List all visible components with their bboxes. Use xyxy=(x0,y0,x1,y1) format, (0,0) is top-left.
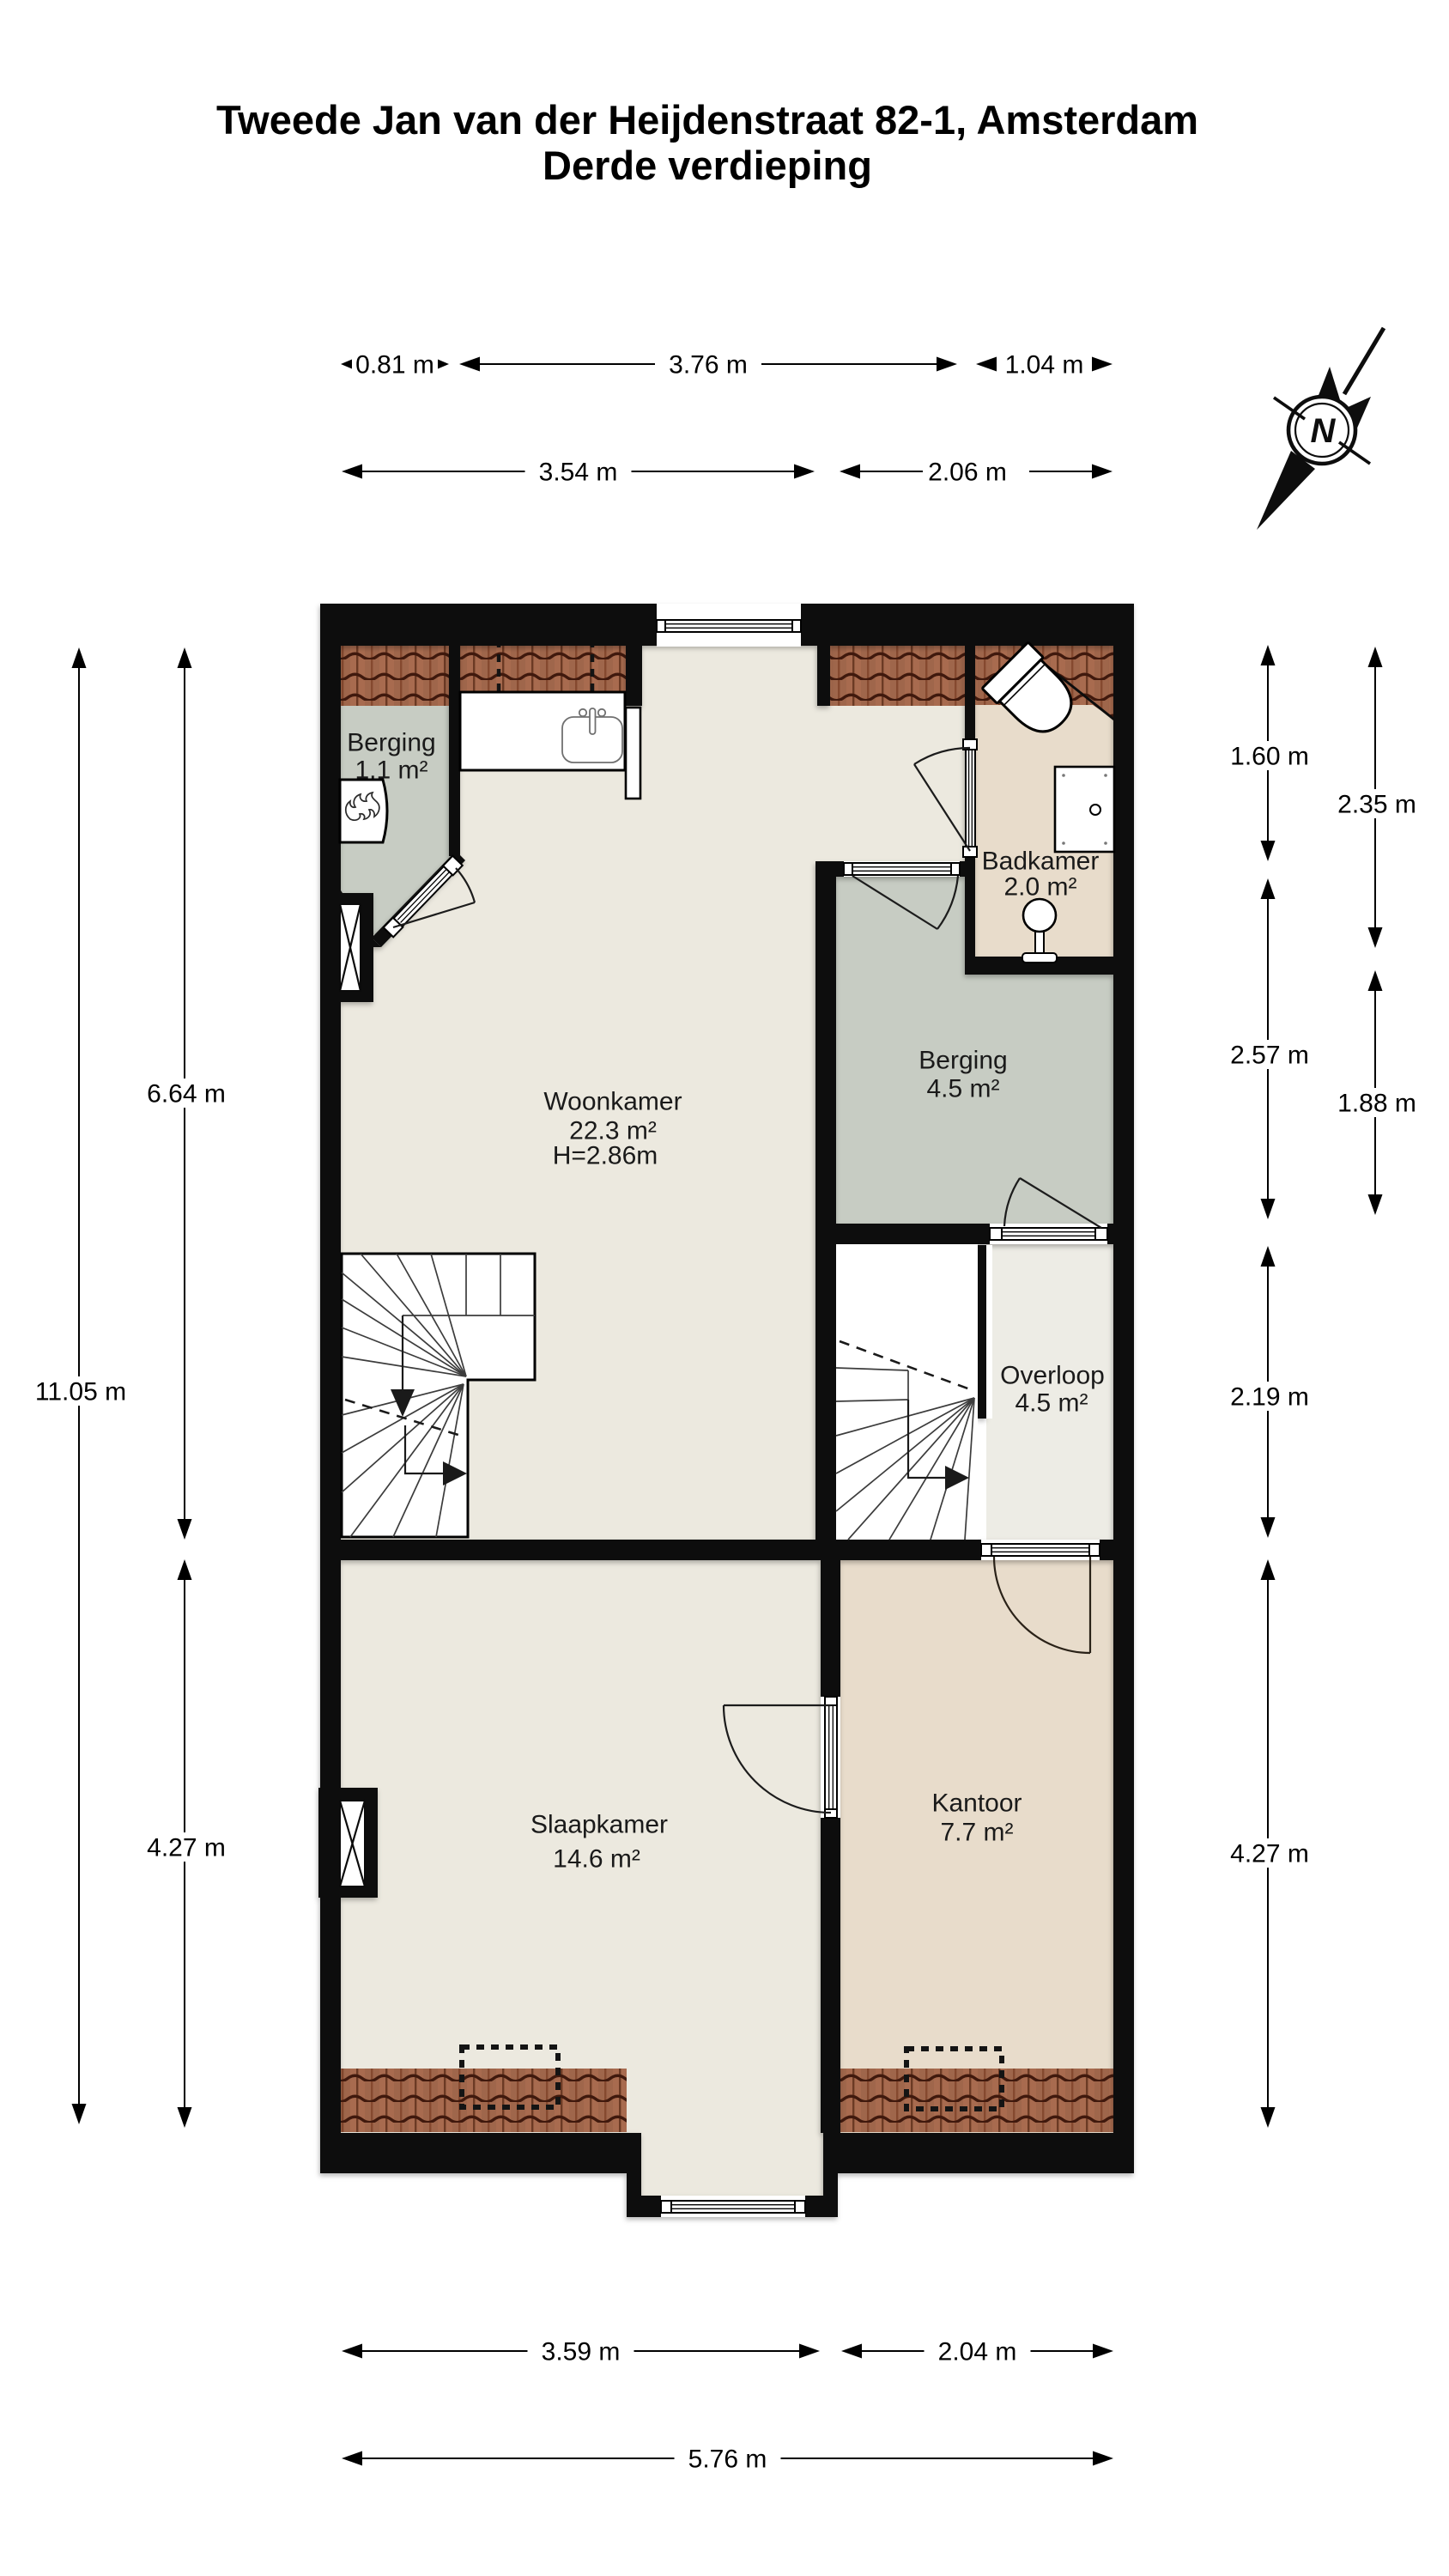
svg-text:1.88 m: 1.88 m xyxy=(1337,1090,1416,1118)
svg-text:0.81 m: 0.81 m xyxy=(355,351,434,380)
svg-text:2.19 m: 2.19 m xyxy=(1230,1383,1309,1412)
svg-text:Tweede Jan van der Heijdenstra: Tweede Jan van der Heijdenstraat 82-1, A… xyxy=(216,97,1198,143)
svg-text:2.06 m: 2.06 m xyxy=(928,459,1007,487)
svg-text:Berging: Berging xyxy=(919,1047,1007,1075)
svg-text:Overloop: Overloop xyxy=(1000,1362,1105,1390)
svg-text:4.27 m: 4.27 m xyxy=(147,1834,226,1862)
svg-text:11.05 m: 11.05 m xyxy=(35,1378,126,1406)
svg-text:Badkamer: Badkamer xyxy=(982,848,1100,876)
svg-text:N: N xyxy=(1311,412,1337,450)
svg-text:2.35 m: 2.35 m xyxy=(1337,791,1416,819)
svg-text:Kantoor: Kantoor xyxy=(931,1789,1022,1818)
svg-text:3.59 m: 3.59 m xyxy=(542,2338,621,2366)
svg-text:Slaapkamer: Slaapkamer xyxy=(530,1811,668,1839)
svg-text:Derde verdieping: Derde verdieping xyxy=(543,143,872,188)
svg-text:6.64 m: 6.64 m xyxy=(147,1080,226,1109)
svg-text:2.0 m²: 2.0 m² xyxy=(1003,873,1076,902)
svg-text:3.54 m: 3.54 m xyxy=(539,459,618,487)
svg-text:4.27 m: 4.27 m xyxy=(1230,1840,1309,1868)
svg-text:2.57 m: 2.57 m xyxy=(1230,1042,1309,1070)
svg-text:4.5 m²: 4.5 m² xyxy=(1015,1389,1088,1418)
svg-text:1.1 m²: 1.1 m² xyxy=(355,756,427,785)
svg-text:2.04 m: 2.04 m xyxy=(938,2338,1017,2366)
svg-text:Berging: Berging xyxy=(347,729,435,757)
svg-text:Woonkamer: Woonkamer xyxy=(543,1088,682,1116)
svg-text:14.6 m²: 14.6 m² xyxy=(553,1845,640,1874)
svg-text:H=2.86m: H=2.86m xyxy=(553,1142,658,1170)
svg-text:4.5 m²: 4.5 m² xyxy=(926,1075,999,1103)
svg-text:7.7 m²: 7.7 m² xyxy=(940,1819,1013,1847)
svg-text:1.60 m: 1.60 m xyxy=(1230,743,1309,771)
svg-text:1.04 m: 1.04 m xyxy=(1005,351,1084,380)
svg-text:3.76 m: 3.76 m xyxy=(669,351,748,380)
svg-text:5.76 m: 5.76 m xyxy=(688,2445,767,2474)
